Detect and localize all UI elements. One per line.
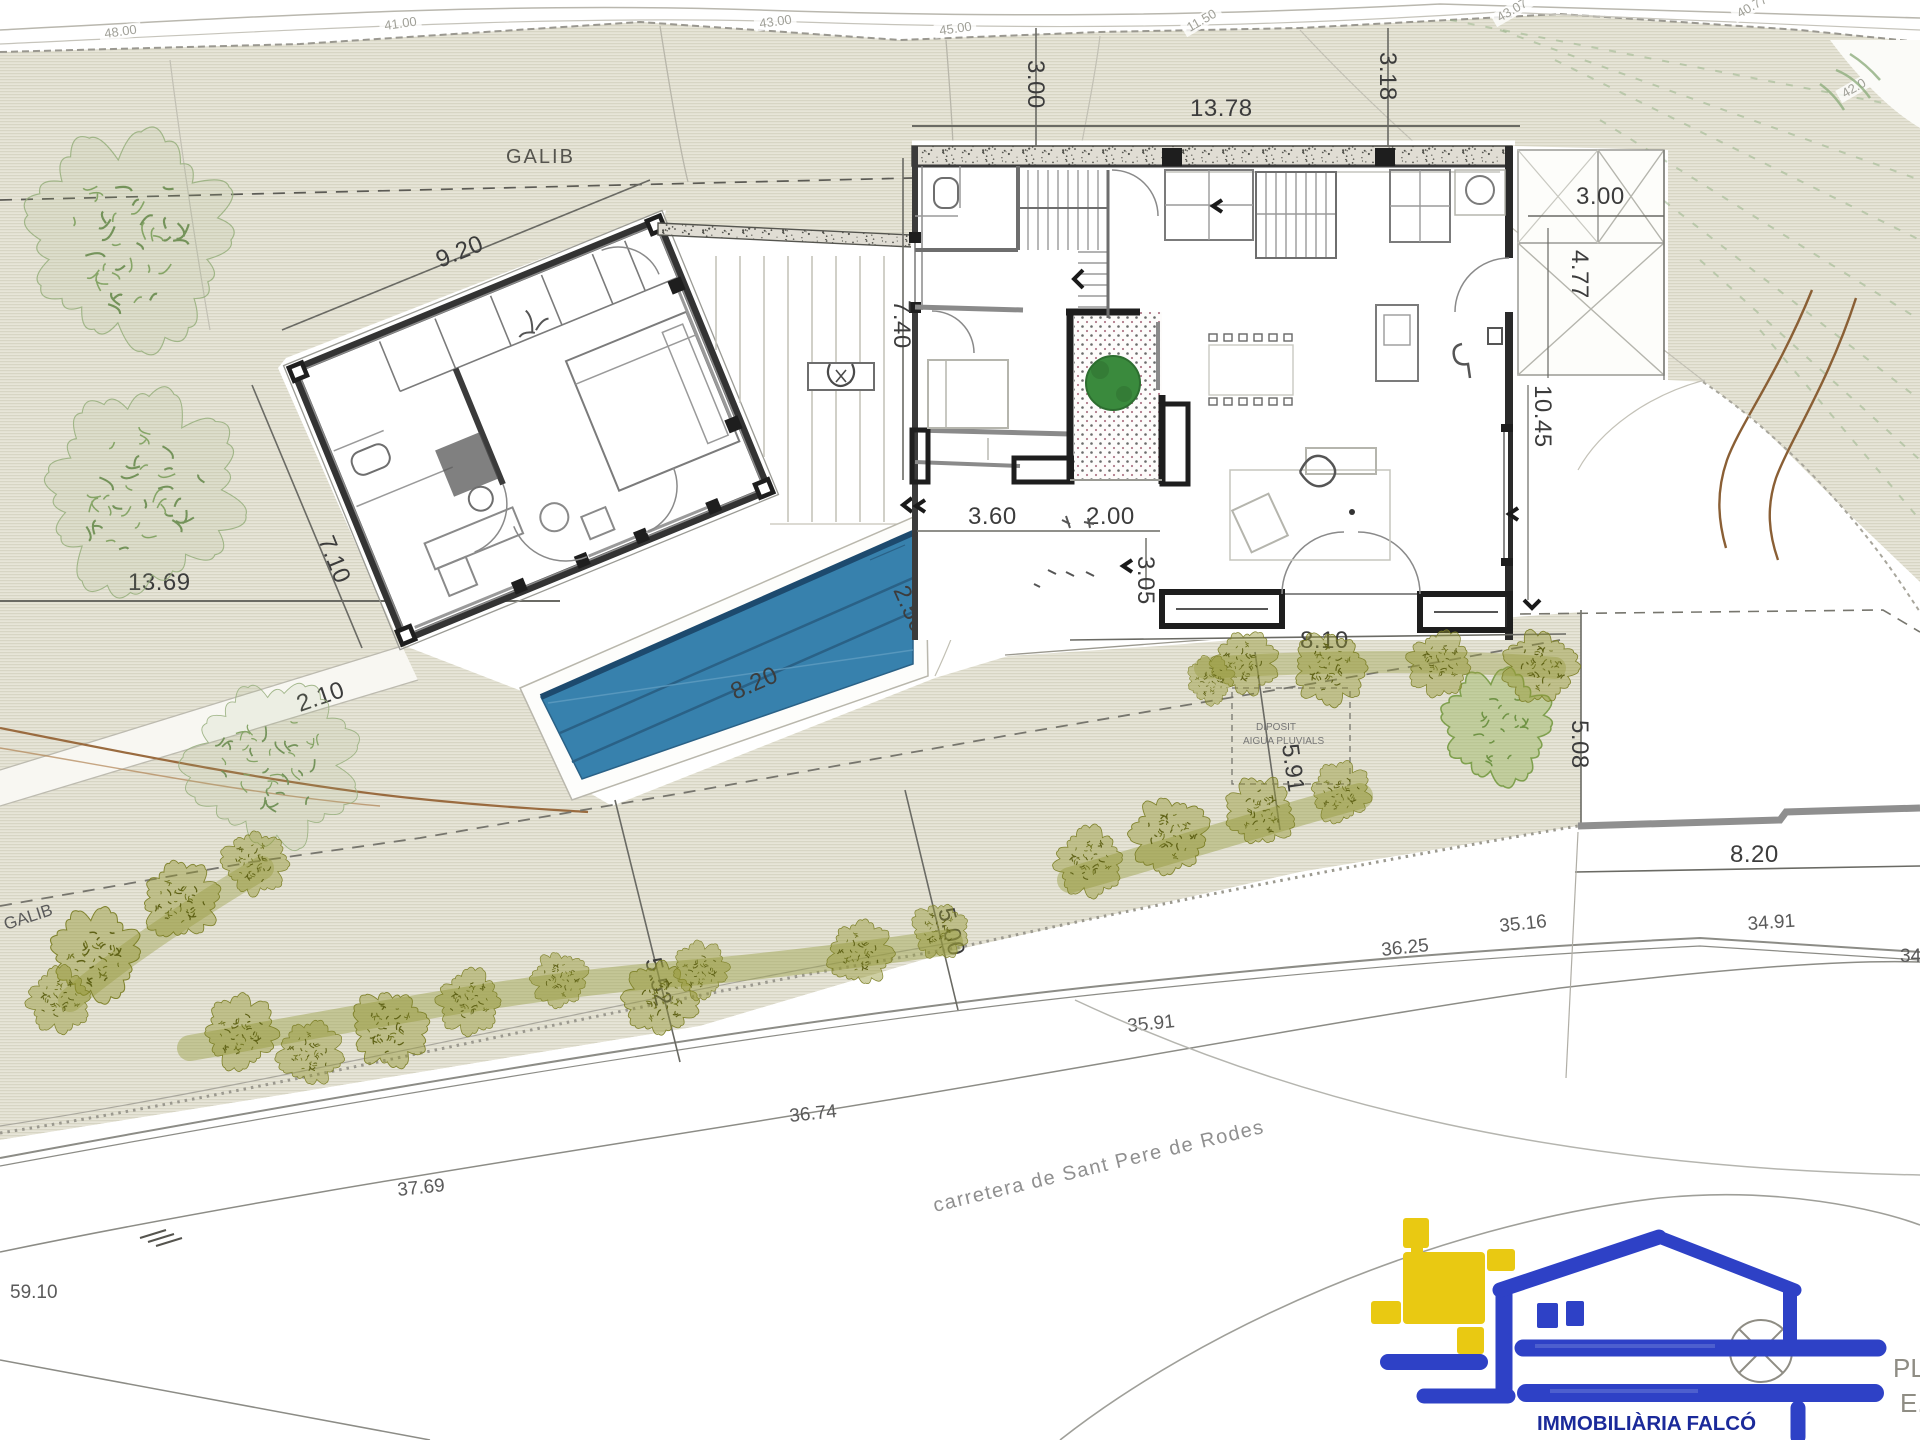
svg-text:PLAN: PLAN (1893, 1353, 1920, 1383)
svg-text:AIGUA PLUVIALS: AIGUA PLUVIALS (1243, 736, 1324, 747)
svg-text:34.: 34. (1900, 946, 1920, 967)
svg-text:10.45: 10.45 (1529, 385, 1556, 448)
svg-text:3.18: 3.18 (1374, 52, 1401, 101)
svg-text:3.05: 3.05 (1132, 556, 1159, 605)
svg-text:IMMOBILIÀRIA FALCÓ: IMMOBILIÀRIA FALCÓ (1537, 1411, 1756, 1435)
svg-text:4.77: 4.77 (1566, 250, 1593, 299)
svg-text:DIPOSIT: DIPOSIT (1256, 722, 1296, 733)
svg-text:GALIB: GALIB (506, 146, 575, 168)
svg-text:8.20: 8.20 (1730, 841, 1779, 868)
svg-text:E.1/2: E.1/2 (1900, 1388, 1920, 1418)
svg-text:3.00: 3.00 (1576, 183, 1625, 210)
svg-text:7.40: 7.40 (888, 300, 915, 349)
svg-text:3.00: 3.00 (1022, 60, 1049, 109)
svg-text:5.08: 5.08 (1566, 720, 1593, 769)
svg-text:2.00: 2.00 (1086, 503, 1135, 530)
svg-text:59.10: 59.10 (10, 1282, 58, 1303)
svg-text:13.78: 13.78 (1190, 95, 1253, 122)
svg-text:34.91: 34.91 (1747, 911, 1796, 935)
svg-text:3.60: 3.60 (968, 503, 1017, 530)
